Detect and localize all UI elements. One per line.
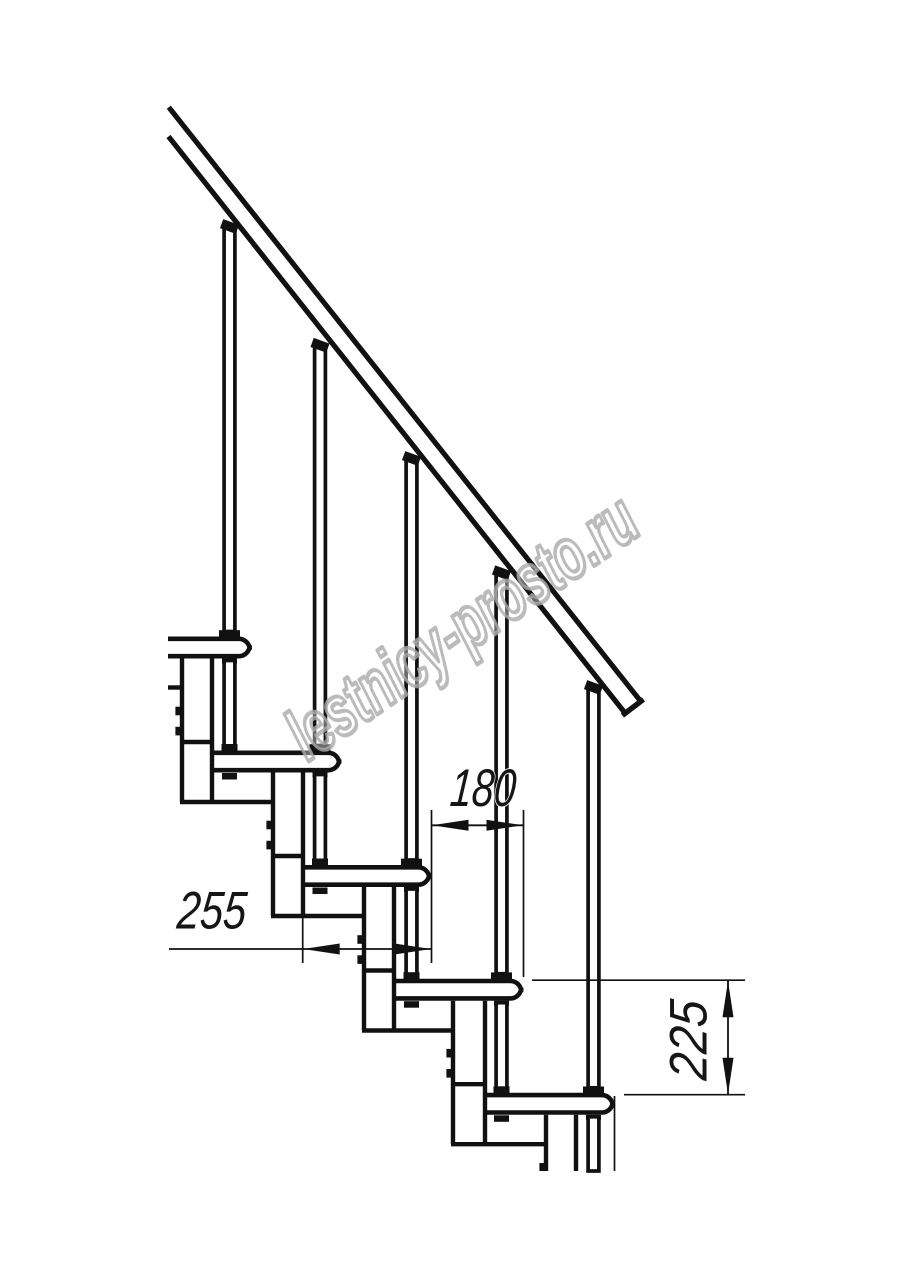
svg-text:225: 225 (658, 996, 718, 1083)
svg-text:255: 255 (174, 882, 249, 941)
svg-text:180: 180 (448, 758, 519, 817)
